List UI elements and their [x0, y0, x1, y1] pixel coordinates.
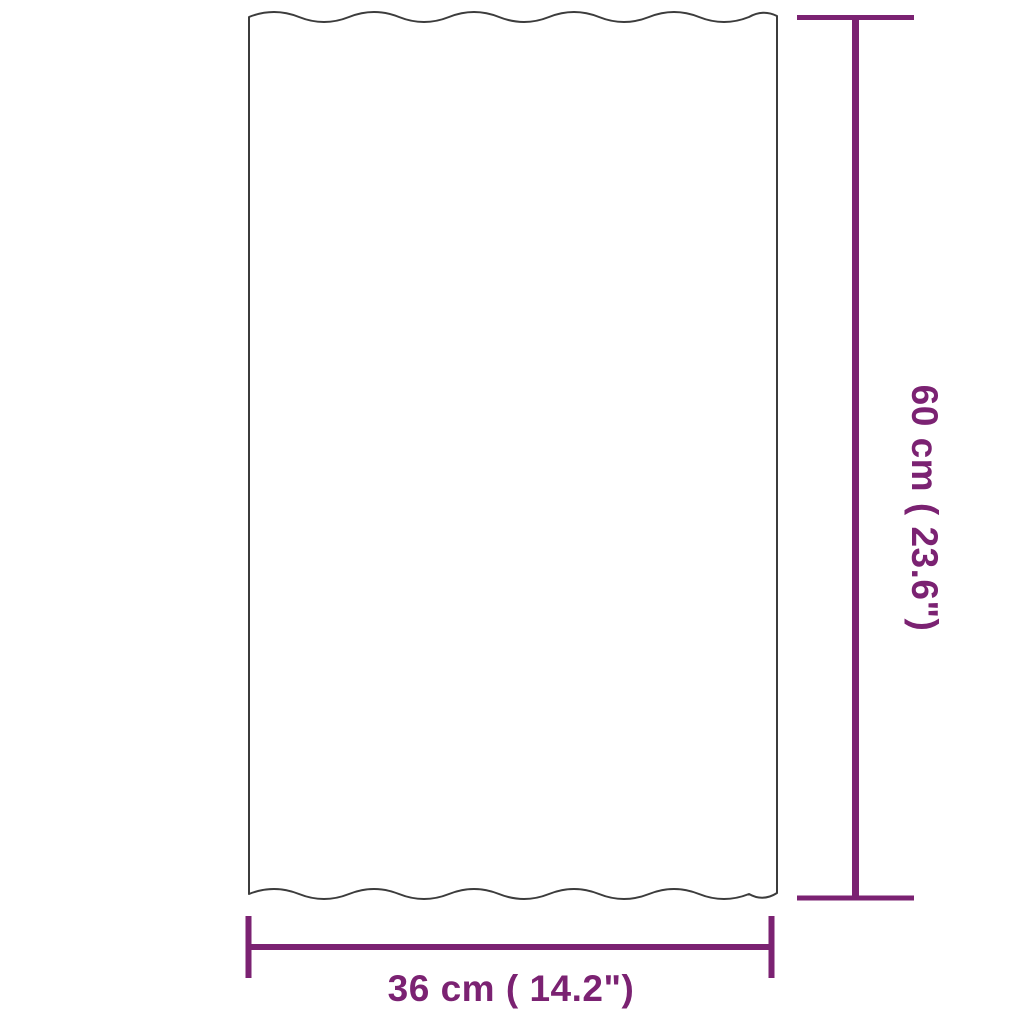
diagram-canvas: 60 cm ( 23.6") 36 cm ( 14.2"): [0, 0, 1024, 1024]
height-dimension-label: 60 cm ( 23.6"): [904, 385, 945, 632]
roof-panel-outline: [249, 12, 777, 899]
height-dimension: 60 cm ( 23.6"): [797, 17, 945, 898]
width-dimension: 36 cm ( 14.2"): [249, 916, 772, 1009]
product-dimension-diagram: 60 cm ( 23.6") 36 cm ( 14.2"): [0, 0, 1024, 1024]
width-dimension-label: 36 cm ( 14.2"): [388, 968, 635, 1009]
